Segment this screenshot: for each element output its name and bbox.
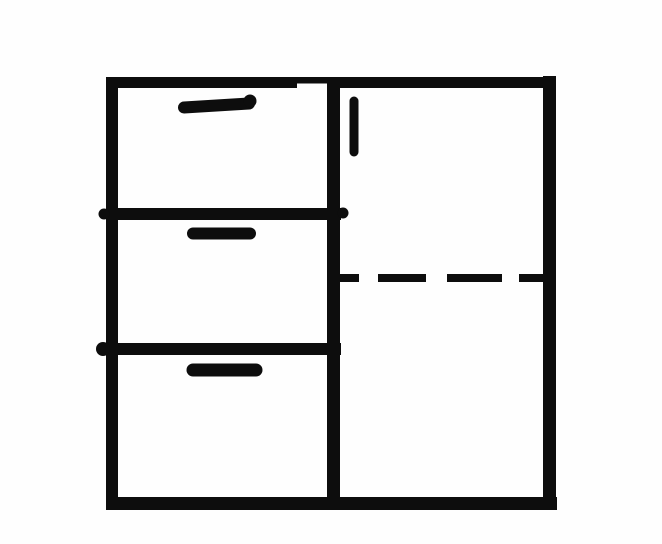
ink-blot-left-upper: [99, 209, 110, 220]
ink-blot-left-lower: [96, 342, 110, 356]
ink-blot-divider-right: [338, 208, 349, 219]
sketch-canvas: [0, 0, 662, 544]
cabinet-drawing: [0, 0, 662, 544]
drawer-handle-1: [184, 104, 249, 108]
top-border-notch: [297, 84, 327, 89]
ink-blot-handle-1-end: [244, 95, 257, 108]
